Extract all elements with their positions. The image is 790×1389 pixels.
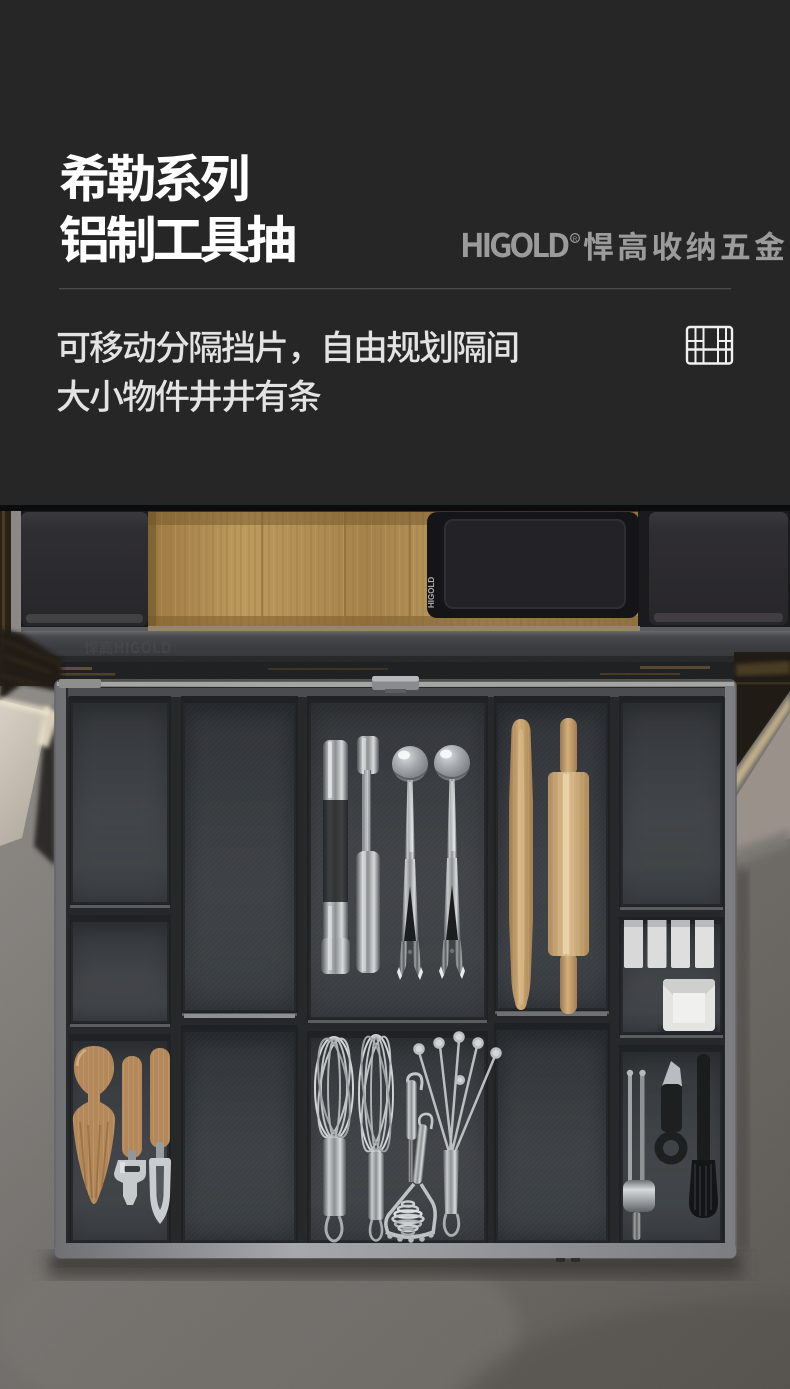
svg-text:R: R	[573, 236, 578, 243]
svg-text:HIGOLD: HIGOLD	[427, 577, 436, 608]
